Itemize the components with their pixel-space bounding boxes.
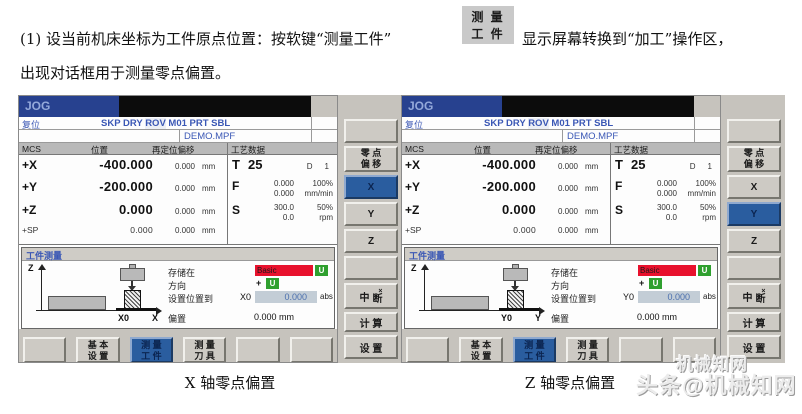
program-name: DEMO.MPF [567, 131, 618, 142]
bottom-softkeys: 基 本设 置 测 量工 件 测 量刀 具 [19, 329, 337, 363]
caption-z-axis: Z 轴零点偏置 [490, 372, 650, 393]
softkey-axis-x[interactable]: X [344, 175, 398, 199]
softkey-basic-settings[interactable]: 基 本设 置 [459, 337, 502, 363]
table-header: MCS 位置 再定位偏移 工艺数据 [19, 143, 337, 155]
measure-diagram: Z X0 X [28, 263, 168, 325]
direction-label: 方向 [551, 279, 569, 292]
program-status-bar [502, 96, 694, 117]
diagram-haxis-label: Y [535, 313, 541, 323]
softkey-zero-offset[interactable]: 零 点偏 移 [727, 146, 781, 172]
vertical-softkeys: 零 点偏 移 X Y Z 中×断 计 算 设 置 [721, 95, 785, 363]
direction-label: 方向 [168, 279, 186, 292]
tool-row: T25 D1 [232, 157, 333, 179]
intro-line2: 出现对话框用于测量零点偏置。 [20, 62, 230, 83]
diagram-origin-label: Y0 [501, 313, 512, 323]
workpiece-measure-dialog: 工件测量 Z Y0 Y 存储在 Basic [404, 247, 718, 329]
stored-unit-toggle[interactable]: U [698, 265, 711, 276]
watermark-line2: 头条@机械知网 [636, 368, 796, 400]
abs-suffix: abs [703, 292, 716, 301]
tool-row: T25 D1 [615, 157, 716, 179]
measure-workpiece-button-image: 测 量 工 件 [462, 6, 514, 44]
offset-label: 偏置 [551, 312, 569, 325]
diagram-vaxis-label: Z [28, 263, 34, 273]
abs-suffix: abs [320, 292, 333, 301]
header-tech-data: 工艺数据 [614, 144, 648, 156]
dialog-title: 工件测量 [405, 248, 717, 261]
offset-label: 偏置 [168, 312, 186, 325]
axes-table: +X-400.0000.000mm +Y-200.0000.000mm +Z0.… [19, 155, 337, 245]
direction-value[interactable]: + [639, 278, 644, 288]
softkey-blank[interactable] [727, 256, 781, 280]
set-position-label: 设置位置到 [168, 292, 213, 305]
stored-in-label: 存储在 [168, 266, 195, 279]
softkey-blank[interactable] [344, 119, 398, 143]
title-bar: JOG [19, 96, 337, 117]
softkey-axis-y[interactable]: Y [727, 202, 781, 226]
table-row-z: +Z0.0000.000mm [19, 202, 227, 225]
up-arrow-icon [38, 264, 46, 270]
title-bar: JOG [402, 96, 720, 117]
set-position-label: 设置位置到 [551, 292, 596, 305]
softkey-interrupt[interactable]: 中×断 [727, 283, 781, 309]
header-repos-offset: 再定位偏移 [535, 144, 578, 156]
softkey-blank[interactable] [23, 337, 66, 363]
mode-indicator: JOG [19, 96, 119, 117]
softkey-axis-x[interactable]: X [727, 175, 781, 199]
workpiece-measure-dialog: 工件测量 Z X0 X 存储在 Basic [21, 247, 335, 329]
table-row-x: +X-400.0000.000mm [402, 157, 610, 179]
cnc-screenshot-x-axis: JOG 复位 SKP DRY ROV M01 PRT SBL DEMO.MPF … [18, 95, 402, 363]
softkey-blank[interactable] [344, 256, 398, 280]
table-header: MCS 位置 再定位偏移 工艺数据 [402, 143, 720, 155]
tool-data-panel: T25 D1 F 0.0000.000 100%mm/min S 300.00.… [610, 155, 720, 244]
tool-holder-shape [120, 268, 145, 281]
mode-indicator: JOG [402, 96, 502, 117]
spindle-row: S 300.00.0 50%rpm [232, 203, 333, 227]
header-mcs: MCS [405, 144, 424, 154]
screen-main-area: JOG 复位 SKP DRY ROV M01 PRT SBL DEMO.MPF … [401, 95, 721, 363]
table-row-x: +X-400.0000.000mm [19, 157, 227, 179]
offset-value: 0.000 mm [637, 312, 677, 322]
softkey-blank[interactable] [406, 337, 449, 363]
feed-row: F 0.0000.000 100%mm/min [232, 179, 333, 203]
softkey-blank[interactable] [727, 119, 781, 143]
direction-unit-toggle[interactable]: U [649, 278, 662, 289]
softkey-measure-tool[interactable]: 测 量刀 具 [566, 337, 609, 363]
status-flags: SKP DRY ROV M01 PRT SBL [101, 118, 230, 129]
status-row: 复位 SKP DRY ROV M01 PRT SBL [19, 117, 337, 130]
intro-line1-post: 显示屏幕转换到“加工”操作区， [522, 28, 732, 49]
table-row-sp: +SP0.0000.000mm [402, 225, 610, 243]
axes-table: +X-400.0000.000mm +Y-200.0000.000mm +Z0.… [402, 155, 720, 245]
softkey-measure-tool[interactable]: 测 量刀 具 [183, 337, 226, 363]
vertical-softkeys: 零 点偏 移 X Y Z 中×断 计 算 设 置 [338, 95, 402, 363]
softkey-calculate[interactable]: 计 算 [727, 312, 781, 332]
header-repos-offset: 再定位偏移 [152, 144, 195, 156]
table-row-y: +Y-200.0000.000mm [19, 179, 227, 202]
table-row-z: +Z0.0000.000mm [402, 202, 610, 225]
softkey-interrupt[interactable]: 中×断 [344, 283, 398, 309]
probe-shape [124, 290, 141, 309]
header-position: 位置 [474, 144, 491, 156]
header-tech-data: 工艺数据 [231, 144, 265, 156]
program-name: DEMO.MPF [184, 131, 235, 142]
softkey-axis-z[interactable]: Z [344, 229, 398, 253]
softkey-axis-y[interactable]: Y [344, 202, 398, 226]
softkey-measure-workpiece[interactable]: 测 量工 件 [513, 337, 556, 363]
offset-value: 0.000 mm [254, 312, 294, 322]
screen-main-area: JOG 复位 SKP DRY ROV M01 PRT SBL DEMO.MPF … [18, 95, 338, 363]
set-position-input[interactable]: 0.000 [255, 291, 317, 303]
dialog-title: 工件测量 [22, 248, 334, 261]
measure-diagram: Z Y0 Y [411, 263, 551, 325]
page: (1) 设当前机床坐标为工件原点位置：按软键“测量工件” 测 量 工 件 显示屏… [0, 0, 802, 414]
softkey-measure-workpiece[interactable]: 测 量工 件 [130, 337, 173, 363]
spindle-row: S 300.00.0 50%rpm [615, 203, 716, 227]
program-row: DEMO.MPF [402, 130, 720, 143]
softkey-blank[interactable] [290, 337, 333, 363]
softkey-axis-z[interactable]: Z [727, 229, 781, 253]
softkey-calculate[interactable]: 计 算 [344, 312, 398, 332]
tool-data-panel: T25 D1 F 0.0000.000 100%mm/min S 300.00.… [227, 155, 337, 244]
header-position: 位置 [91, 144, 108, 156]
header-mcs: MCS [22, 144, 41, 154]
bottom-softkeys: 基 本设 置 测 量工 件 测 量刀 具 [402, 329, 720, 363]
tool-holder-shape [503, 268, 528, 281]
status-flags: SKP DRY ROV M01 PRT SBL [484, 118, 613, 129]
caption-x-axis: X 轴零点偏置 [150, 372, 310, 393]
set-position-input[interactable]: 0.000 [638, 291, 700, 303]
diagram-haxis-label: X [152, 313, 158, 323]
probe-shape [507, 290, 524, 309]
set-position-axis: X0 [240, 292, 251, 302]
program-status-bar [119, 96, 311, 117]
table-row-y: +Y-200.0000.000mm [402, 179, 610, 202]
direction-value[interactable]: + [256, 278, 261, 288]
status-row: 复位 SKP DRY ROV M01 PRT SBL [402, 117, 720, 130]
softkey-settings[interactable]: 设 置 [344, 335, 398, 359]
intro-line1-pre: (1) 设当前机床坐标为工件原点位置：按软键“测量工件” [20, 28, 391, 49]
program-row: DEMO.MPF [19, 130, 337, 143]
softkey-blank[interactable] [619, 337, 662, 363]
workpiece-shape [48, 296, 106, 310]
cnc-screenshot-y-axis: JOG 复位 SKP DRY ROV M01 PRT SBL DEMO.MPF … [401, 95, 785, 363]
table-row-sp: +SP0.0000.000mm [19, 225, 227, 243]
softkey-zero-offset[interactable]: 零 点偏 移 [344, 146, 398, 172]
up-arrow-icon [421, 264, 429, 270]
workpiece-shape [431, 296, 489, 310]
feed-row: F 0.0000.000 100%mm/min [615, 179, 716, 203]
diagram-origin-label: X0 [118, 313, 129, 323]
stored-unit-toggle[interactable]: U [315, 265, 328, 276]
measure-workpiece-button-line1: 测 量 [462, 9, 514, 26]
stored-in-value[interactable]: Basic [638, 265, 696, 276]
softkey-blank[interactable] [236, 337, 279, 363]
stored-in-label: 存储在 [551, 266, 578, 279]
softkey-basic-settings[interactable]: 基 本设 置 [76, 337, 119, 363]
diagram-vaxis-label: Z [411, 263, 417, 273]
measure-workpiece-button-line2: 工 件 [462, 26, 514, 43]
direction-unit-toggle[interactable]: U [266, 278, 279, 289]
stored-in-value[interactable]: Basic [255, 265, 313, 276]
set-position-axis: Y0 [623, 292, 634, 302]
